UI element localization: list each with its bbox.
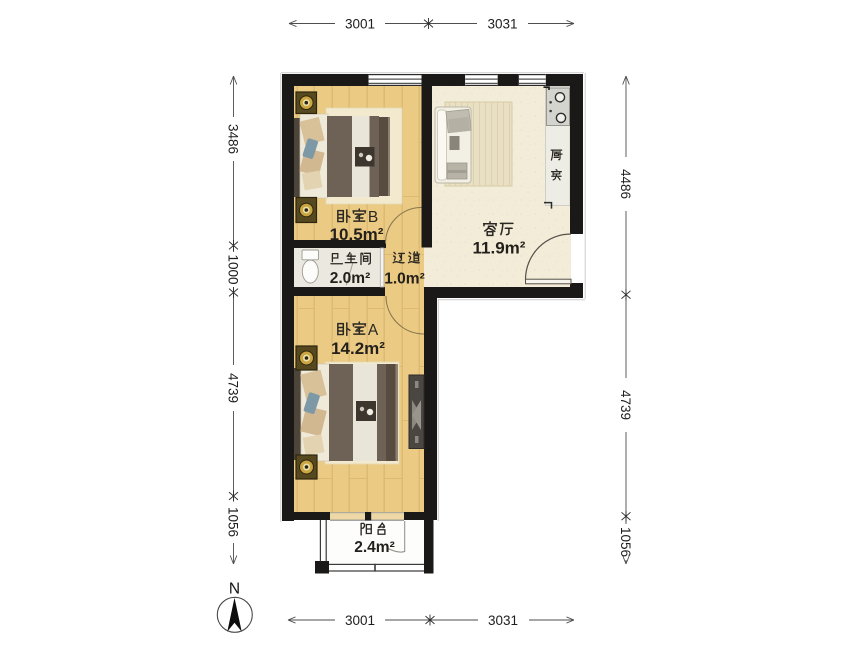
- svg-text:1000: 1000: [226, 254, 241, 284]
- svg-text:10.5m²: 10.5m²: [330, 225, 384, 244]
- svg-text:1.0m²: 1.0m²: [384, 271, 425, 288]
- svg-text:4739: 4739: [618, 390, 633, 420]
- svg-text:A: A: [368, 322, 379, 339]
- svg-text:3001: 3001: [345, 613, 375, 628]
- svg-text:14.2m²: 14.2m²: [331, 339, 385, 358]
- svg-text:3031: 3031: [487, 16, 517, 31]
- svg-text:2.0m²: 2.0m²: [330, 270, 371, 287]
- svg-text:1056: 1056: [618, 527, 633, 557]
- svg-text:4739: 4739: [226, 373, 241, 403]
- svg-text:2.4m²: 2.4m²: [354, 539, 395, 556]
- svg-text:3486: 3486: [226, 124, 241, 154]
- svg-text:4486: 4486: [618, 169, 633, 199]
- svg-text:B: B: [368, 209, 378, 226]
- svg-text:3001: 3001: [345, 16, 375, 31]
- svg-text:3031: 3031: [488, 613, 518, 628]
- svg-text:N: N: [229, 581, 240, 598]
- svg-text:11.9m²: 11.9m²: [473, 238, 526, 257]
- svg-text:1056: 1056: [226, 507, 241, 537]
